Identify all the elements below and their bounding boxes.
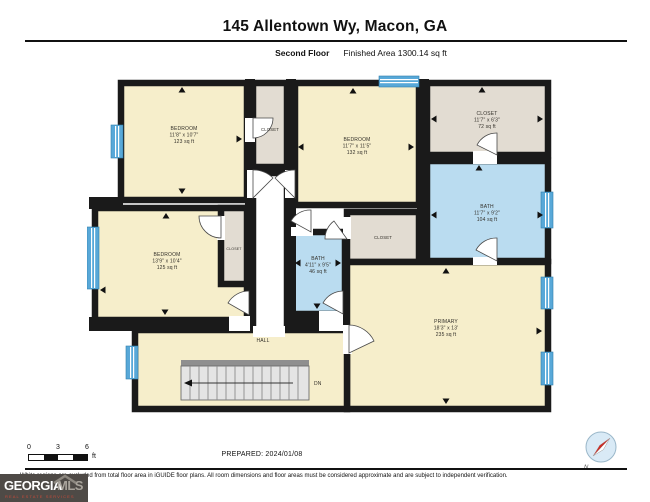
wall-segment [89, 197, 123, 209]
room-label: BEDROOM [154, 252, 181, 258]
room-label: BEDROOM [344, 137, 371, 143]
georgia-mls-logo: GEORGIA MLS REAL ESTATE SERVICES [0, 474, 88, 502]
room-dims: 11'8" x 10'7" [169, 133, 198, 139]
room-area: 123 sq ft [174, 139, 195, 145]
floor-plan-page: 145 Allentown Wy, Macon, GA Second Floor… [0, 0, 650, 502]
logo-roof-icon [52, 474, 82, 484]
window [111, 125, 123, 158]
footer-divider [25, 468, 627, 470]
scale-tick-6: 6 [85, 444, 89, 451]
floor-subheader: Second FloorFinished Area 1300.14 sq ft [0, 48, 650, 58]
room-label: BATH [311, 256, 325, 262]
room-label: CLOSET [226, 247, 242, 251]
room-area: 72 sq ft [478, 124, 496, 130]
wall-segment [89, 317, 251, 331]
room-dims: 11'7" x 9'2" [474, 211, 500, 217]
window [541, 277, 553, 309]
room-area: 104 sq ft [477, 217, 498, 223]
header-divider [25, 40, 627, 42]
staircase [181, 360, 309, 400]
room-dims: 18'3" x 13' [434, 326, 459, 332]
door-opening [229, 316, 250, 331]
door-opening [319, 311, 343, 331]
room-dims: 4'11" x 9'5" [305, 263, 331, 269]
stairs-dn-label: DN [314, 381, 322, 387]
floor-plan: BEDROOM 11'8" x 10'7" 123 sq ft BEDROOM … [87, 75, 557, 415]
room-label: BATH [480, 204, 494, 210]
room-label: HALL [256, 338, 269, 344]
window [379, 76, 419, 87]
room-label: PRIMARY [434, 319, 458, 325]
wall-segment [417, 79, 429, 263]
window [126, 346, 138, 379]
room-label: CLOSET [261, 127, 279, 132]
finished-area-label: Finished Area 1300.14 sq ft [343, 48, 447, 58]
room-label: CLOSET [374, 235, 392, 240]
compass-icon: N [582, 430, 622, 472]
room-area: 125 sq ft [157, 265, 178, 271]
room-area: 132 sq ft [347, 150, 368, 156]
page-title: 145 Allentown Wy, Macon, GA [0, 18, 650, 36]
wall-segment [286, 79, 296, 331]
room-area: 235 sq ft [436, 332, 457, 338]
window [541, 192, 553, 228]
disclaimer-text: White regions are excluded from total fl… [20, 473, 640, 479]
room-label: BEDROOM [171, 126, 198, 132]
room-dims: 11'7" x 6'3" [474, 118, 500, 124]
logo-tagline: REAL ESTATE SERVICES [5, 494, 75, 499]
scale-tick-3: 3 [56, 444, 60, 451]
stair-passage [253, 326, 285, 337]
prepared-date: PREPARED: 2024/01/08 [0, 451, 524, 458]
window [541, 352, 553, 385]
stairwell-void [253, 173, 287, 333]
room-label: CLOSET [477, 111, 498, 117]
room-area: 46 sq ft [309, 269, 327, 275]
scale-tick-0: 0 [27, 444, 31, 451]
floor-label: Second Floor [275, 48, 329, 58]
room-dims: 11'7" x 11'5" [343, 144, 372, 150]
window [87, 227, 99, 289]
room-dims: 13'9" x 10'4" [152, 259, 181, 265]
